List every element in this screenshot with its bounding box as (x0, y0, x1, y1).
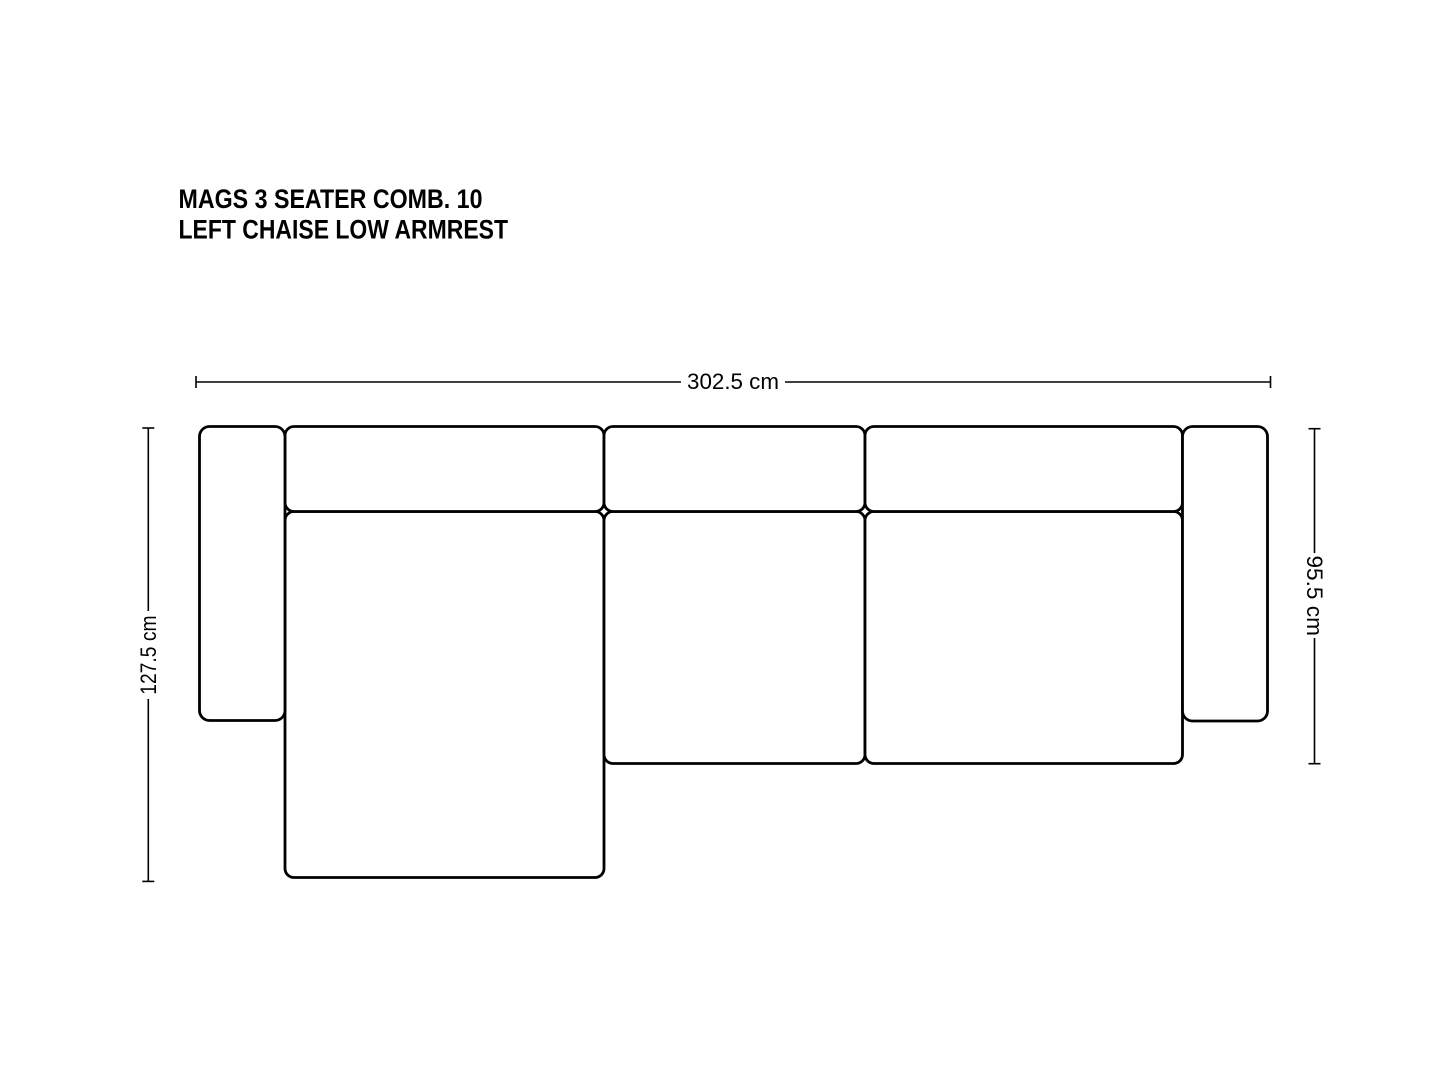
svg-text:MAGS 3 SEATER COMB. 10: MAGS 3 SEATER COMB. 10 (179, 184, 483, 214)
svg-text:LEFT CHAISE LOW ARMREST: LEFT CHAISE LOW ARMREST (179, 214, 509, 244)
svg-text:95.5 cm: 95.5 cm (1302, 555, 1327, 636)
svg-text:127.5 cm: 127.5 cm (136, 615, 161, 694)
svg-text:302.5 cm: 302.5 cm (687, 369, 779, 394)
